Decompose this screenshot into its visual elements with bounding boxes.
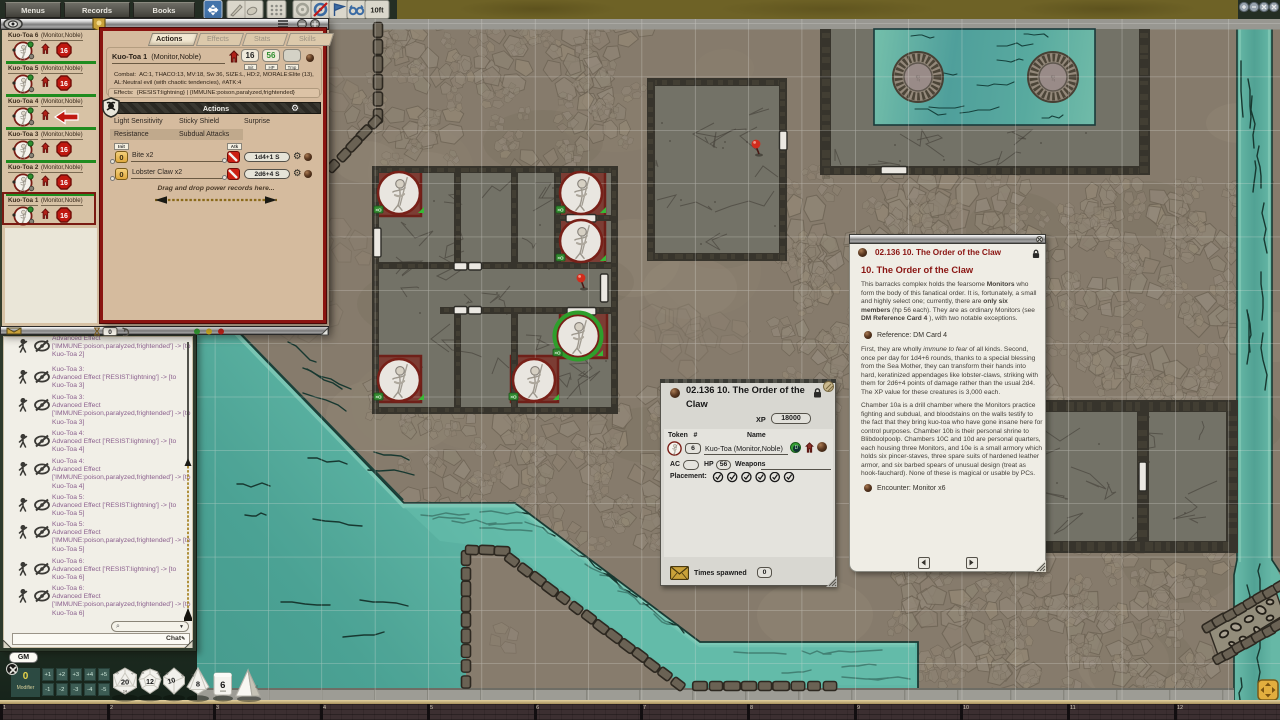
svg-text:6: 6 xyxy=(220,680,225,691)
svg-text:12: 12 xyxy=(146,679,154,686)
svg-text:20: 20 xyxy=(121,678,129,687)
svg-text:0: 0 xyxy=(108,329,112,336)
svg-text:8: 8 xyxy=(196,680,200,689)
svg-text:16: 16 xyxy=(60,180,68,187)
svg-text:14: 14 xyxy=(123,689,128,694)
svg-text:10ft: 10ft xyxy=(370,6,384,15)
svg-text:16: 16 xyxy=(60,147,68,154)
svg-text:16: 16 xyxy=(60,48,68,55)
svg-text:16: 16 xyxy=(60,81,68,88)
svg-text:4: 4 xyxy=(255,684,259,690)
